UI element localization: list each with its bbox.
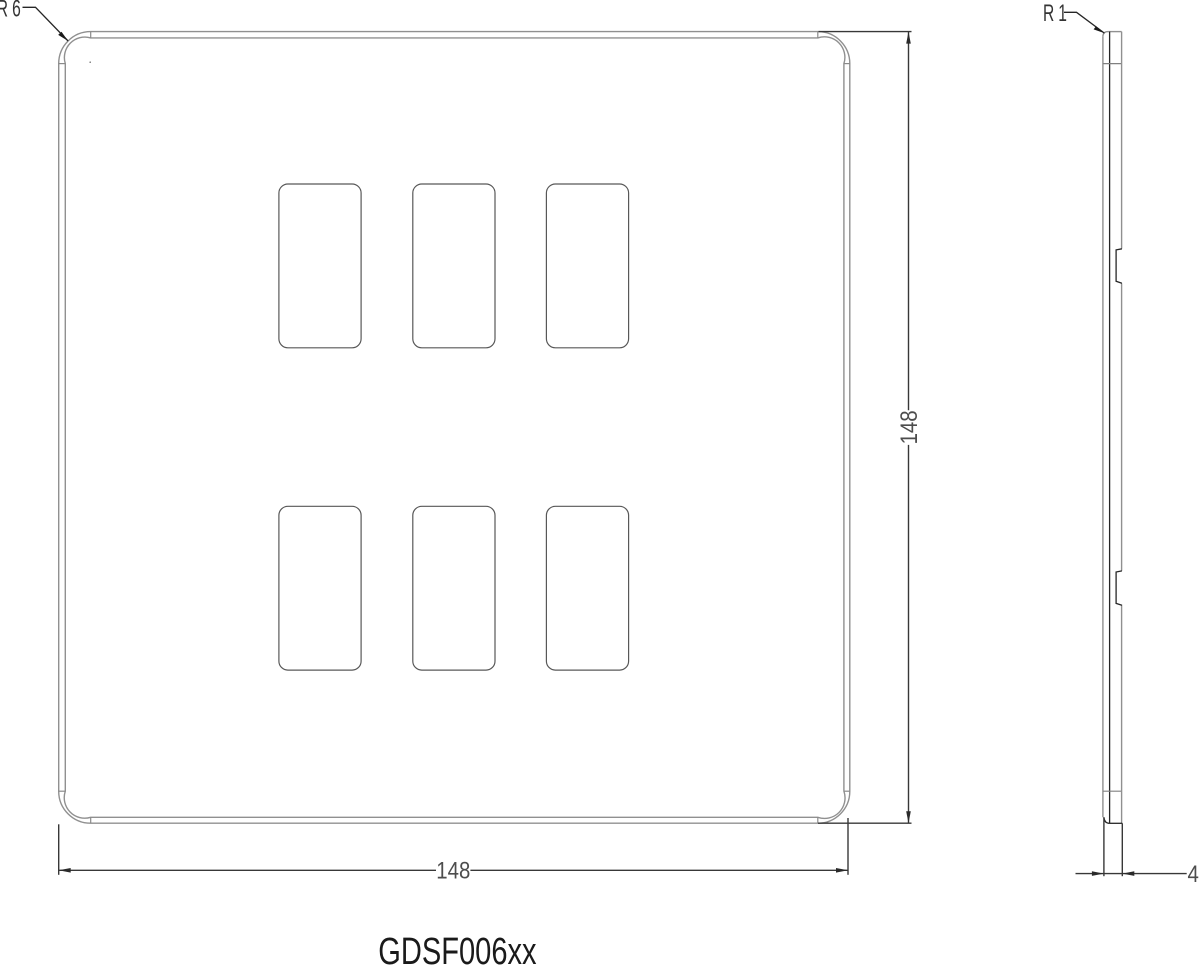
svg-text:148: 148 <box>895 410 922 444</box>
svg-text:GDSF006xx: GDSF006xx <box>378 930 536 966</box>
svg-text:4: 4 <box>1188 860 1199 887</box>
svg-text:148: 148 <box>436 857 470 884</box>
svg-text:R1: R1 <box>1043 1 1071 27</box>
svg-text:R6: R6 <box>0 0 25 23</box>
